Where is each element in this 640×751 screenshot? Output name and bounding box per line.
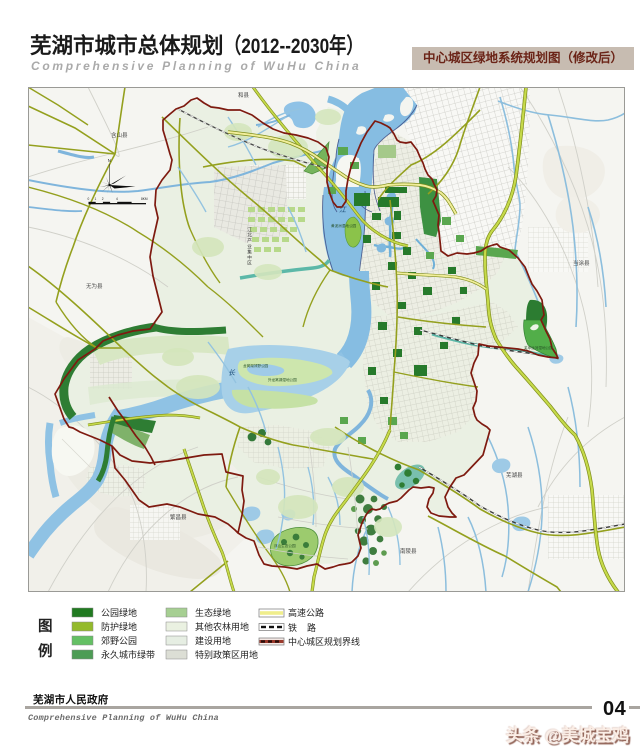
svg-text:芜申运河湿地公园: 芜申运河湿地公园 xyxy=(524,345,553,350)
svg-text:和县: 和县 xyxy=(238,91,250,99)
svg-text:龙窝湖郊野公园: 龙窝湖郊野公园 xyxy=(243,363,269,368)
svg-text:1: 1 xyxy=(95,197,97,201)
svg-text:4: 4 xyxy=(116,197,118,201)
svg-text:江: 江 xyxy=(339,206,347,214)
svg-text:黄泥洲湿地公园: 黄泥洲湿地公园 xyxy=(331,223,357,228)
svg-text:2: 2 xyxy=(102,197,104,201)
svg-text:南陵县: 南陵县 xyxy=(400,547,417,555)
svg-text:繁昌县: 繁昌县 xyxy=(170,513,187,521)
svg-text:0: 0 xyxy=(88,197,90,201)
svg-text:8KM: 8KM xyxy=(141,197,148,201)
svg-text:无为县: 无为县 xyxy=(86,282,103,290)
svg-text:外龙窝湖湿地公园: 外龙窝湖湿地公园 xyxy=(268,377,297,382)
svg-text:江北产业集中区: 江北产业集中区 xyxy=(247,226,253,266)
svg-text:长: 长 xyxy=(228,369,236,377)
svg-text:浮山生态公园: 浮山生态公园 xyxy=(274,543,296,548)
svg-text:含山县: 含山县 xyxy=(111,131,128,139)
svg-text:N: N xyxy=(108,158,111,163)
svg-text:当涂县: 当涂县 xyxy=(573,259,590,267)
svg-text:芜湖县: 芜湖县 xyxy=(506,471,523,479)
